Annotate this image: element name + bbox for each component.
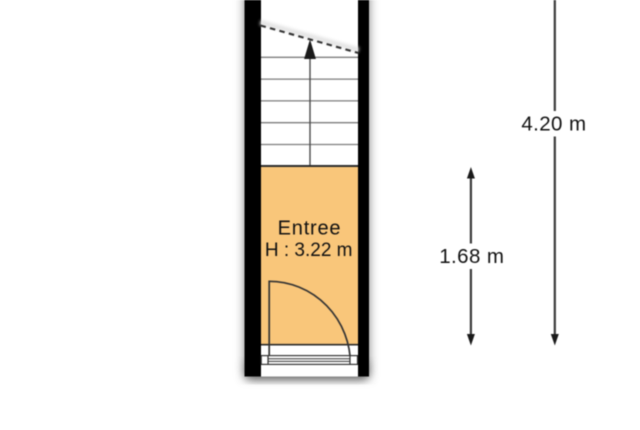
svg-text:Entree: Entree xyxy=(278,218,342,240)
svg-text:H : 3.22 m: H : 3.22 m xyxy=(265,240,353,261)
svg-text:4.20 m: 4.20 m xyxy=(521,113,586,136)
svg-text:1.68 m: 1.68 m xyxy=(439,245,504,268)
